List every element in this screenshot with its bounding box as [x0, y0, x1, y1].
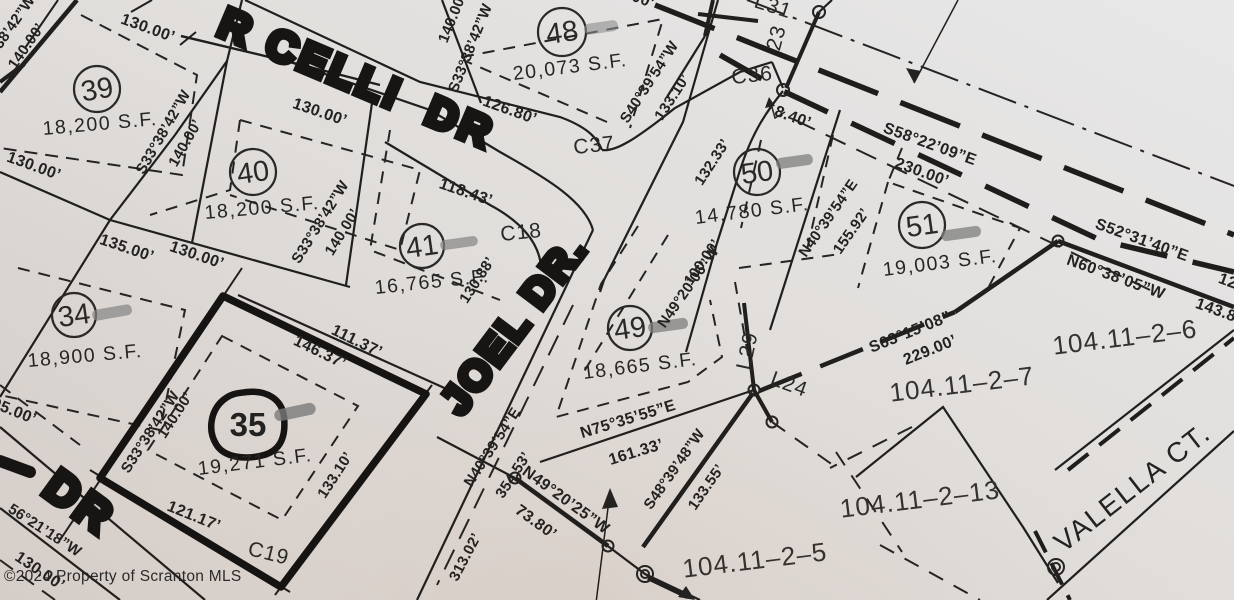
svg-text:40: 40: [235, 155, 271, 191]
svg-text:39: 39: [79, 71, 116, 108]
svg-text:C37: C37: [572, 132, 616, 159]
svg-text:50: 50: [739, 155, 775, 191]
svg-text:C18: C18: [499, 219, 543, 246]
svg-text:49: 49: [612, 311, 648, 347]
svg-text:48: 48: [544, 15, 580, 51]
svg-text:35: 35: [230, 406, 267, 443]
svg-text:34: 34: [56, 298, 92, 334]
svg-text:51: 51: [904, 208, 940, 244]
svg-text:41: 41: [404, 229, 440, 265]
svg-text:C36: C36: [730, 62, 774, 89]
svg-text:©2024 Property of Scranton MLS: ©2024 Property of Scranton MLS: [4, 568, 242, 585]
